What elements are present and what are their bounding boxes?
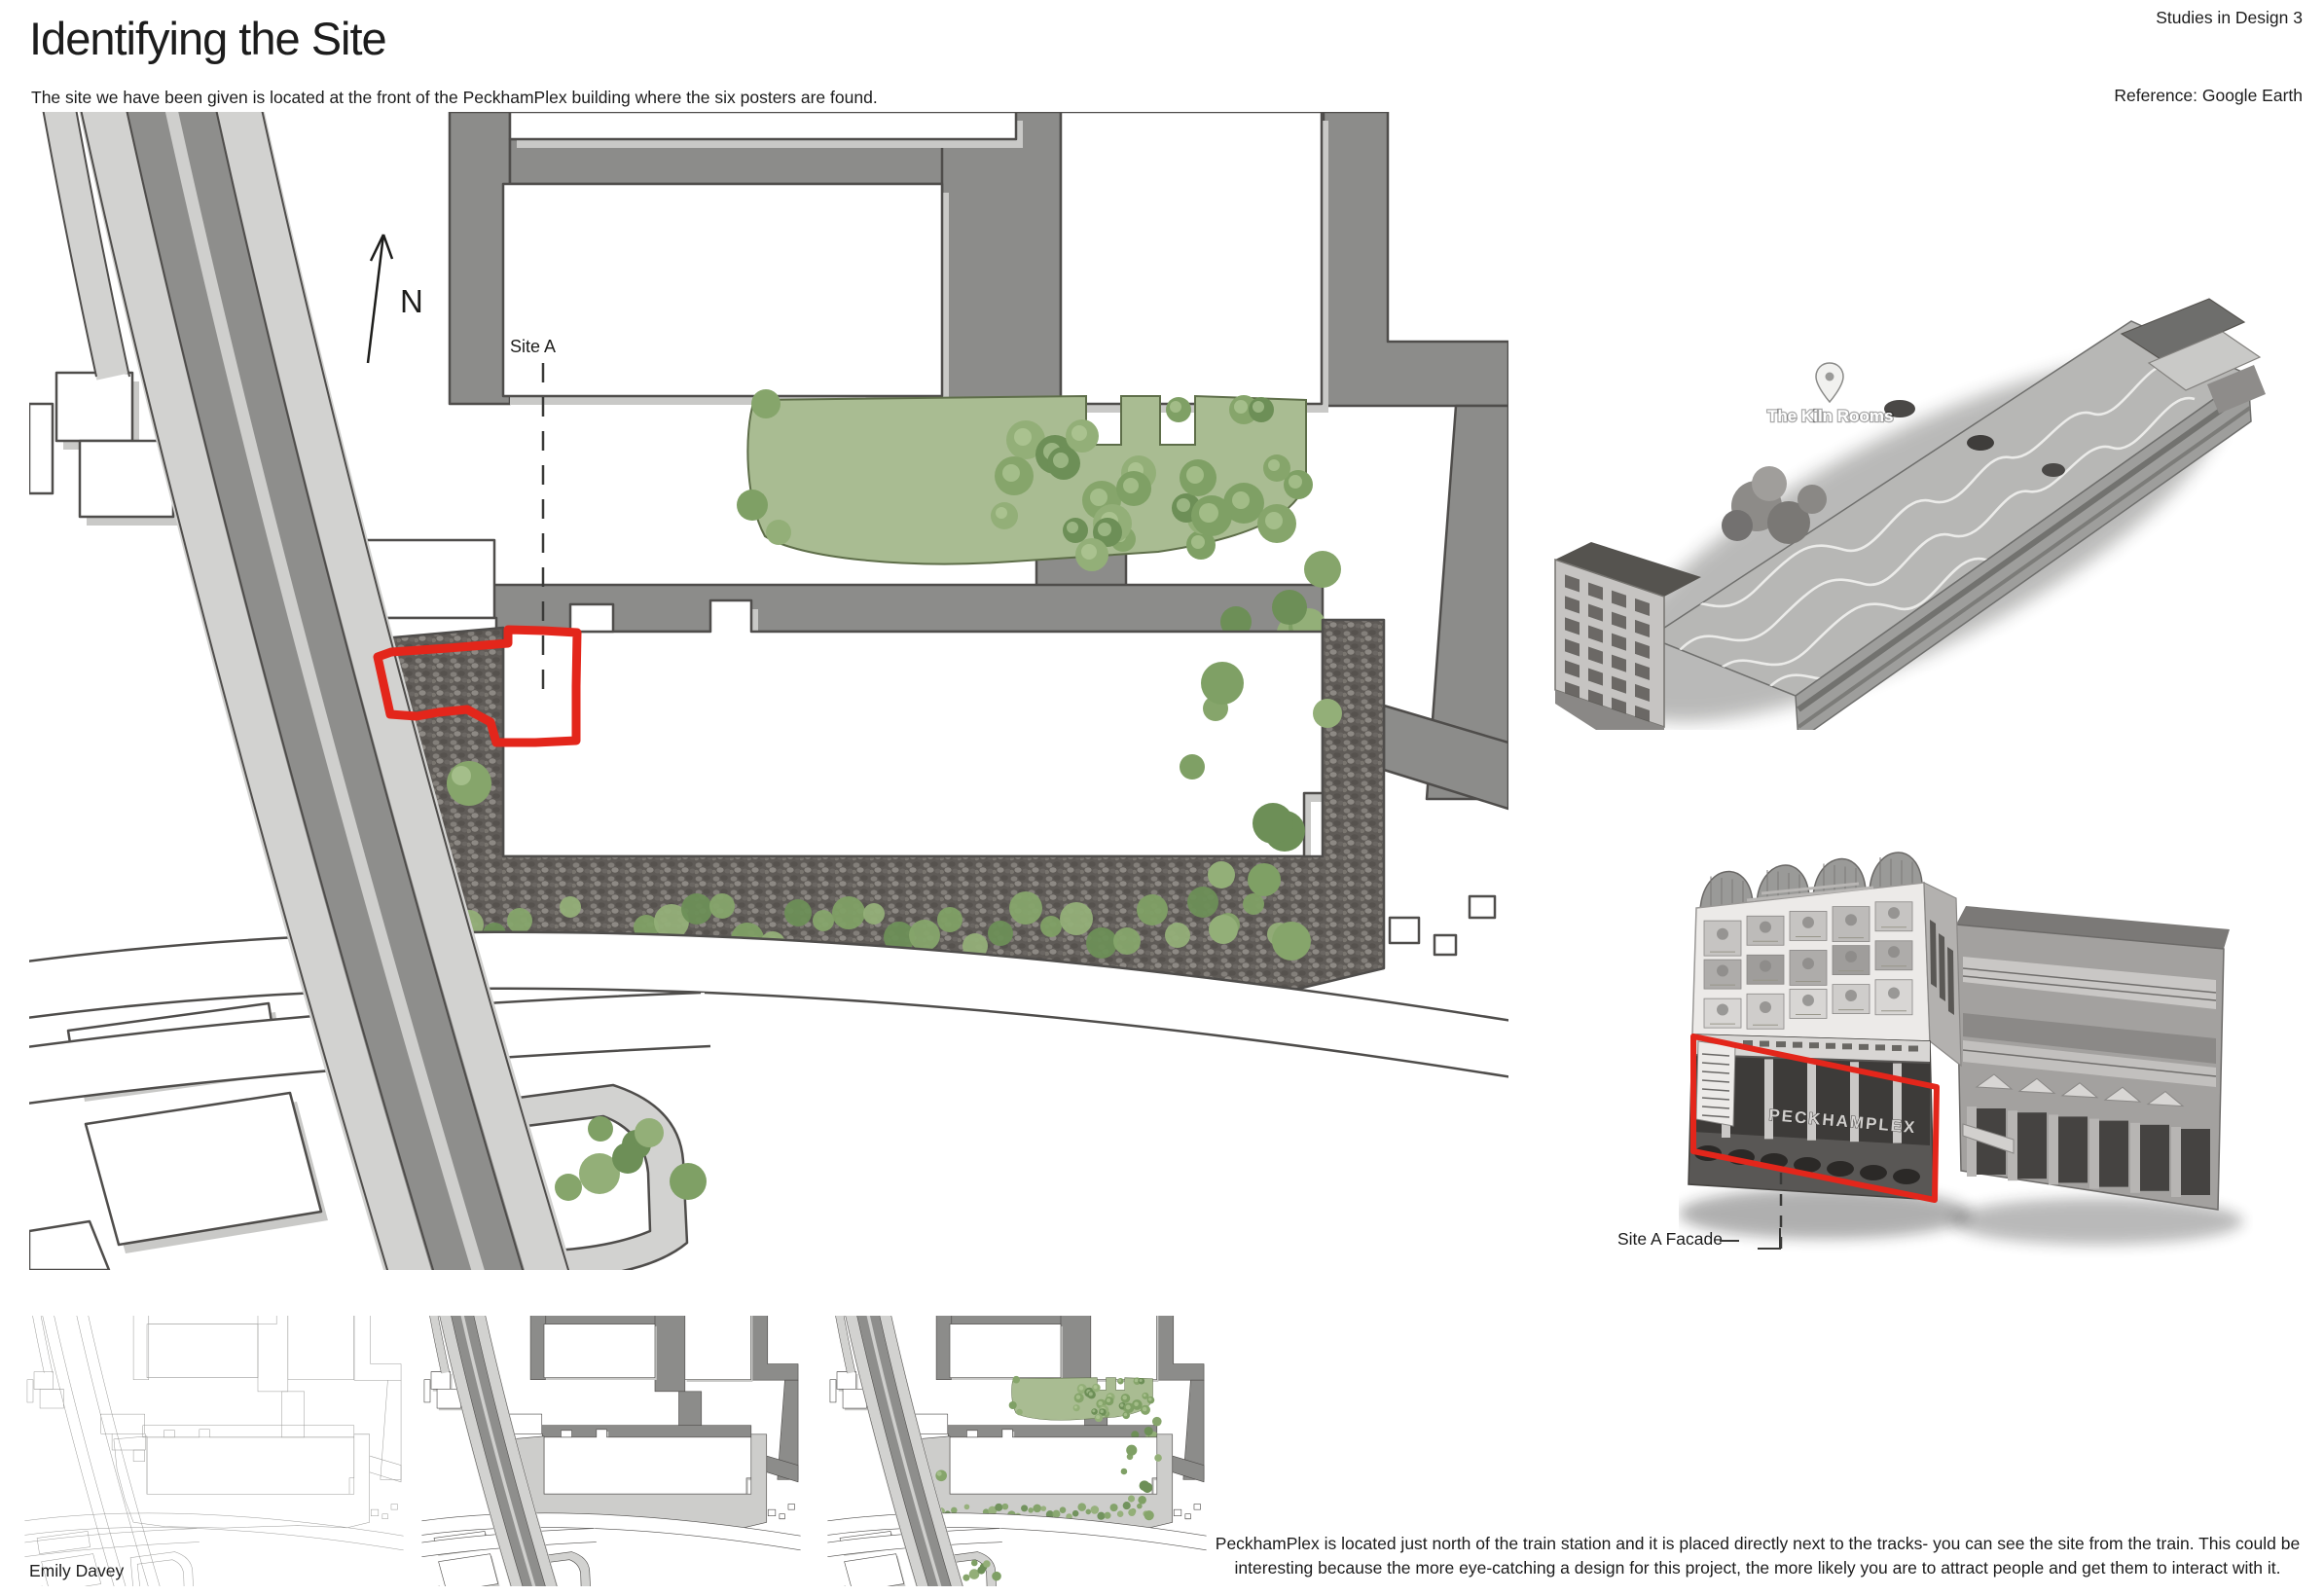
- facade-building-image: PECKHAMPLEX: [1679, 832, 2253, 1280]
- thumbnail-linework-map: [19, 1316, 409, 1586]
- peckhamplex-building: [147, 1430, 354, 1494]
- roads-south: [24, 1513, 403, 1557]
- kiln-rooms-label: The Kiln Rooms: [1767, 407, 1893, 425]
- map-pin-hole: [1826, 373, 1834, 381]
- buildings-west: [27, 1372, 145, 1462]
- site-plan-main: NSite A: [29, 112, 1508, 1270]
- railway: [30, 1316, 166, 1586]
- buildings-north: [544, 1316, 752, 1382]
- facade-label-dash: [1720, 1240, 1739, 1242]
- buildings-north: [950, 1316, 1158, 1382]
- site-a-label: Site A: [510, 337, 556, 356]
- thumbnail-tonal-map: [417, 1316, 806, 1586]
- north-label: N: [400, 283, 423, 319]
- footer-caption: PeckhamPlex is located just north of the…: [1207, 1532, 2308, 1581]
- road-network: [133, 1316, 401, 1482]
- peckhamplex-building: [544, 1430, 753, 1497]
- portfolio-page: Identifying the Site The site we have be…: [0, 0, 2324, 1596]
- aerial-building-image: The Kiln Rooms: [1538, 238, 2287, 730]
- right-block: [1956, 906, 2230, 1210]
- course-label: Studies in Design 3: [1913, 8, 2303, 28]
- map-pin-icon: [1816, 363, 1843, 402]
- page-subtitle: The site we have been given is located a…: [31, 88, 1102, 108]
- cobbled-forecourt: [114, 1434, 370, 1528]
- reference-label: Reference: Google Earth: [1913, 86, 2303, 106]
- buildings-north: [147, 1316, 354, 1380]
- page-title: Identifying the Site: [29, 12, 386, 65]
- facade-label-bracket: [1758, 1228, 1781, 1250]
- thumbnail-landscape-map: [822, 1316, 1212, 1586]
- author-name: Emily Davey: [29, 1561, 124, 1581]
- peckhamplex-building: [503, 600, 1329, 865]
- peckhamplex-building: [950, 1430, 1159, 1497]
- facade-label: Site A Facade: [1617, 1229, 1723, 1250]
- north-arrow: N: [368, 235, 423, 363]
- left-block: PECKHAMPLEX: [1689, 852, 1961, 1200]
